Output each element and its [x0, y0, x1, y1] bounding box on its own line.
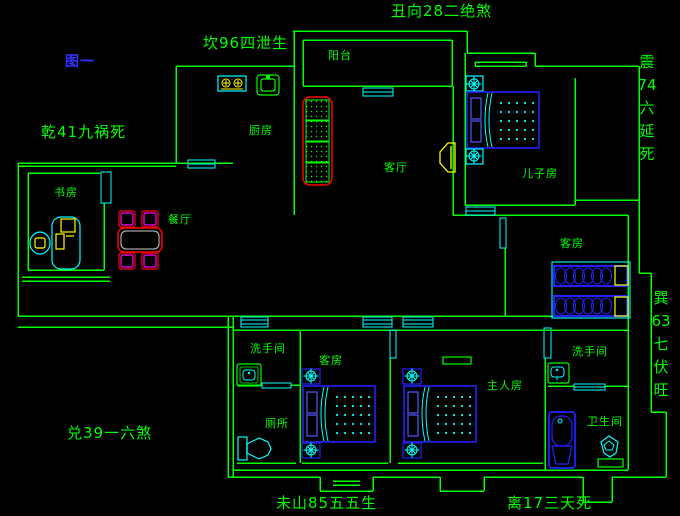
annotation-chou-northeast: 丑向28二绝煞: [391, 3, 492, 20]
master-door-frame: [390, 330, 396, 358]
room-label-washroom-west: 洗手间: [250, 343, 286, 356]
interior-walls: [28, 40, 639, 470]
bathtub: [549, 412, 575, 468]
sofa: [303, 97, 332, 185]
washroom-west-sink: [237, 364, 261, 386]
room-label-balcony: 阳台: [328, 50, 352, 63]
study-desk-set: [30, 217, 80, 269]
room-label-son: 儿子房: [522, 168, 558, 181]
annotation-zhen-east: 震 74 六 延 死: [637, 51, 657, 166]
annotation-xun-southeast: 巽 63 七 伏 旺: [651, 287, 671, 402]
room-label-guest-south: 客房: [319, 355, 343, 368]
room-label-washroom-east: 洗手间: [572, 346, 608, 359]
figure-number-label: 图一: [65, 54, 95, 70]
son-bed: [466, 76, 539, 164]
master-wardrobe: [443, 357, 471, 364]
dining-table-set: [118, 211, 162, 269]
dining-chairs: [119, 211, 158, 269]
washroom-east-door-frame: [544, 328, 551, 358]
kitchen-window: [188, 160, 215, 168]
toilet-east: [598, 436, 623, 467]
bathroom-window: [574, 384, 605, 390]
balcony-window: [363, 88, 393, 96]
room-label-dining: 餐厅: [168, 214, 192, 227]
master-bed: [403, 369, 476, 459]
washroom-east-sink: [548, 363, 569, 383]
room-label-guest-east: 客房: [560, 238, 584, 251]
room-label-bathroom: 卫生间: [587, 416, 623, 429]
room-label-kitchen: 厨房: [249, 125, 273, 138]
room-label-living: 客厅: [384, 162, 408, 175]
toilet-door-frame: [262, 383, 291, 388]
son-room-window: [466, 207, 495, 215]
guest-east-beds: [552, 262, 630, 318]
room-label-master: 主人房: [487, 380, 523, 393]
annotation-dui-west: 兑39一六煞: [67, 425, 152, 442]
annotation-qian-northwest: 乾41九祸死: [41, 124, 126, 141]
guest-east-door-frame: [500, 218, 506, 248]
room-label-study: 书房: [54, 187, 78, 200]
cad-floorplan-window: 图一 丑向28二绝煞 坎96四泄生 乾41九祸死 震 74 六 延 死 巽 63…: [0, 0, 680, 516]
room-label-toilet: 厕所: [265, 418, 289, 431]
kitchen-sink: [257, 75, 279, 95]
study-door-frame: [101, 172, 111, 203]
corridor-window-1: [241, 317, 268, 327]
annotation-wei-mountain: 未山85五五生: [276, 495, 377, 512]
guest-south-bed: [302, 369, 375, 459]
stove: [218, 76, 246, 91]
bay-walls: [22, 277, 612, 502]
annotation-kan-north: 坎96四泄生: [203, 35, 288, 52]
corridor-window-2: [363, 317, 392, 327]
annotation-li-south: 离17三天死: [507, 495, 592, 512]
toilet-west: [238, 437, 271, 460]
corridor-window-3: [403, 317, 433, 327]
